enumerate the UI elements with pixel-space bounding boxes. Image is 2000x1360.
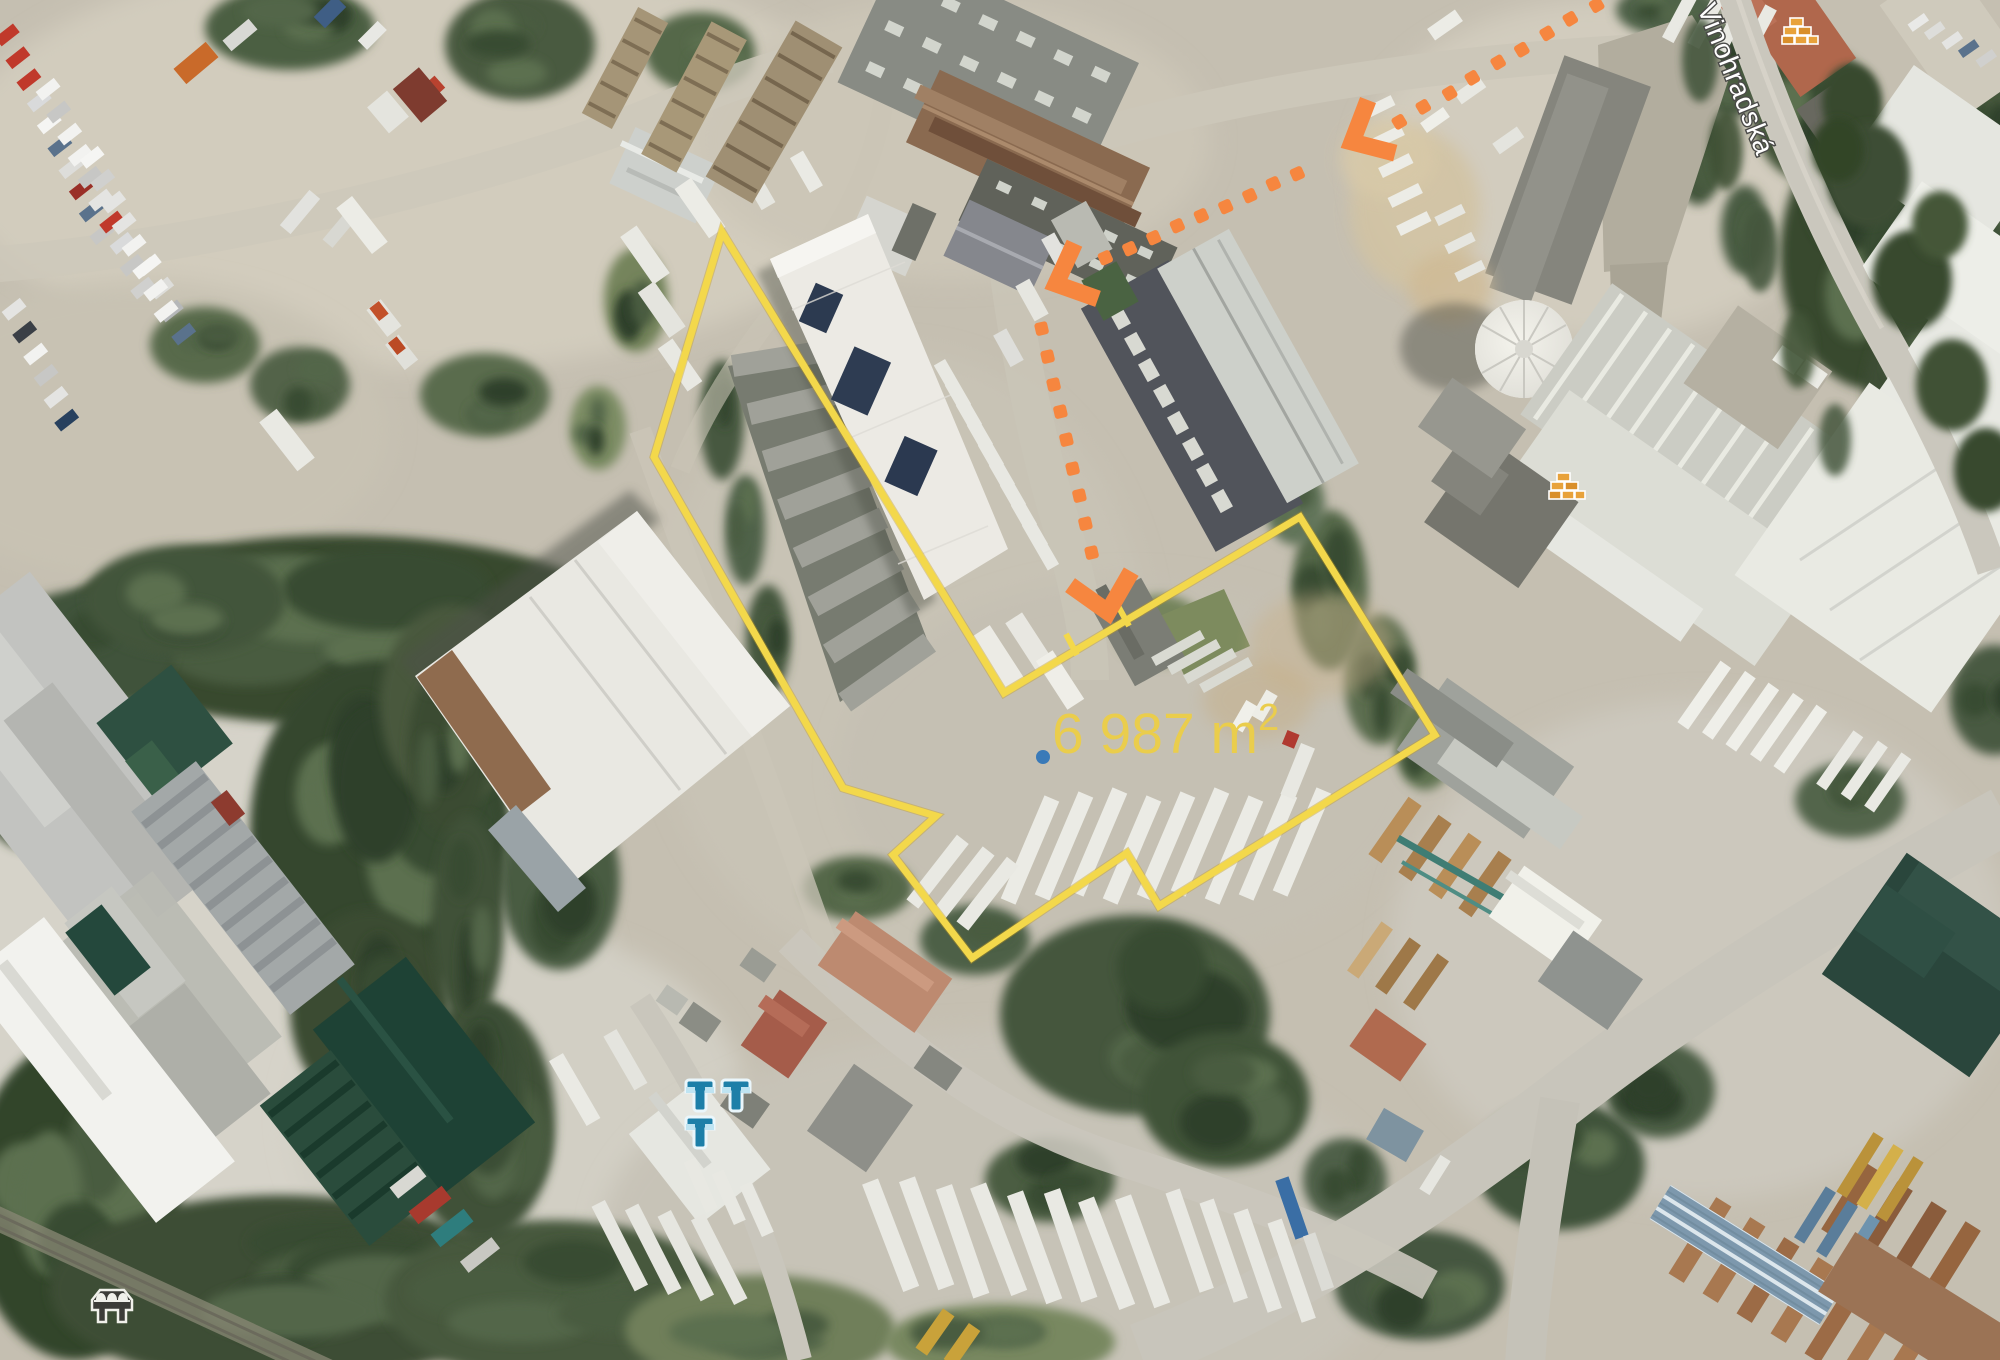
svg-text:6 987 m2: 6 987 m2 — [1052, 697, 1279, 766]
